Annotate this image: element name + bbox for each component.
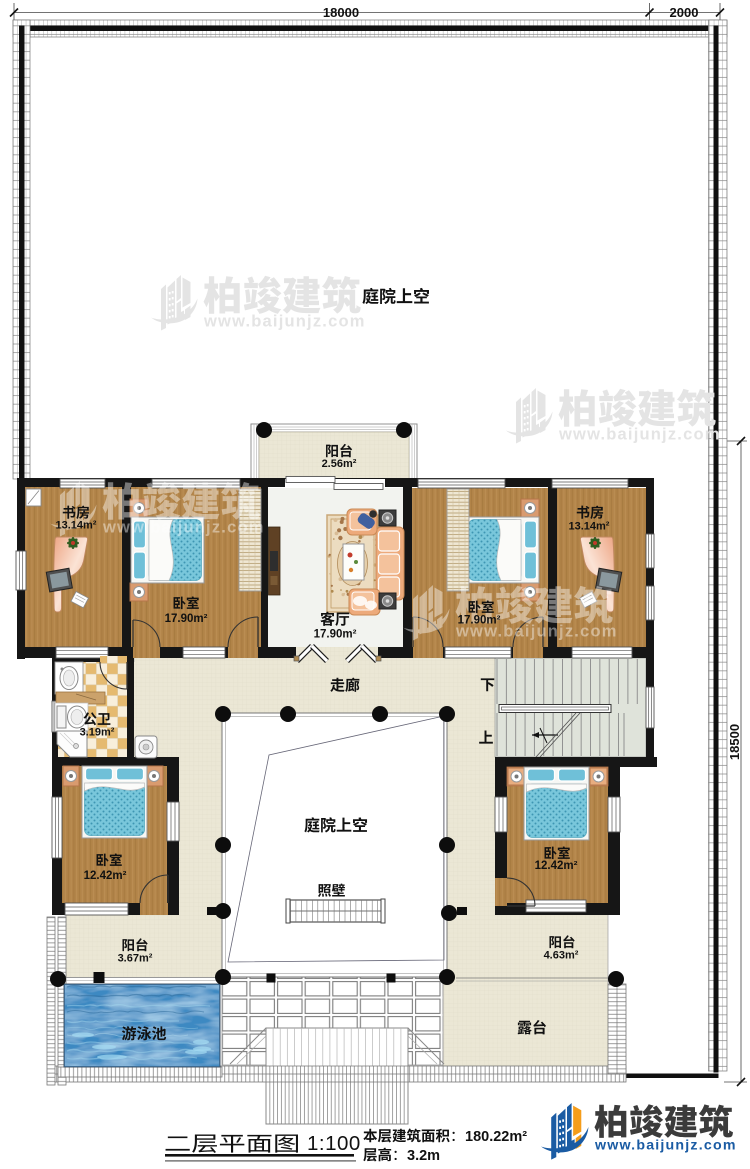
svg-text:www.baijunjz.com: www.baijunjz.com — [594, 1138, 737, 1154]
svg-text:13.14m²: 13.14m² — [569, 521, 610, 533]
svg-text:www.baijunjz.com: www.baijunjz.com — [102, 519, 265, 537]
svg-text:12.42m²: 12.42m² — [535, 860, 578, 872]
svg-text:2000: 2000 — [670, 5, 699, 20]
svg-text:17.90m²: 17.90m² — [165, 613, 208, 625]
svg-text:12.42m²: 12.42m² — [84, 870, 127, 882]
svg-text:180.22m²: 180.22m² — [465, 1129, 527, 1145]
svg-text:www.baijunjz.com: www.baijunjz.com — [203, 313, 366, 331]
svg-text:4.63m²: 4.63m² — [544, 950, 579, 962]
svg-text:3.19m²: 3.19m² — [80, 727, 115, 739]
svg-text:18000: 18000 — [323, 5, 359, 20]
svg-text:1:100: 1:100 — [307, 1132, 361, 1155]
svg-text:www.baijunjz.com: www.baijunjz.com — [558, 426, 721, 444]
svg-text:18500: 18500 — [727, 724, 742, 760]
svg-text:2.56m²: 2.56m² — [322, 458, 357, 470]
svg-text:13.14m²: 13.14m² — [56, 520, 97, 532]
svg-text:17.90m²: 17.90m² — [314, 629, 357, 641]
svg-text:17.90m²: 17.90m² — [458, 615, 501, 627]
svg-text:3.2m: 3.2m — [407, 1148, 440, 1164]
svg-text:3.67m²: 3.67m² — [118, 953, 153, 965]
